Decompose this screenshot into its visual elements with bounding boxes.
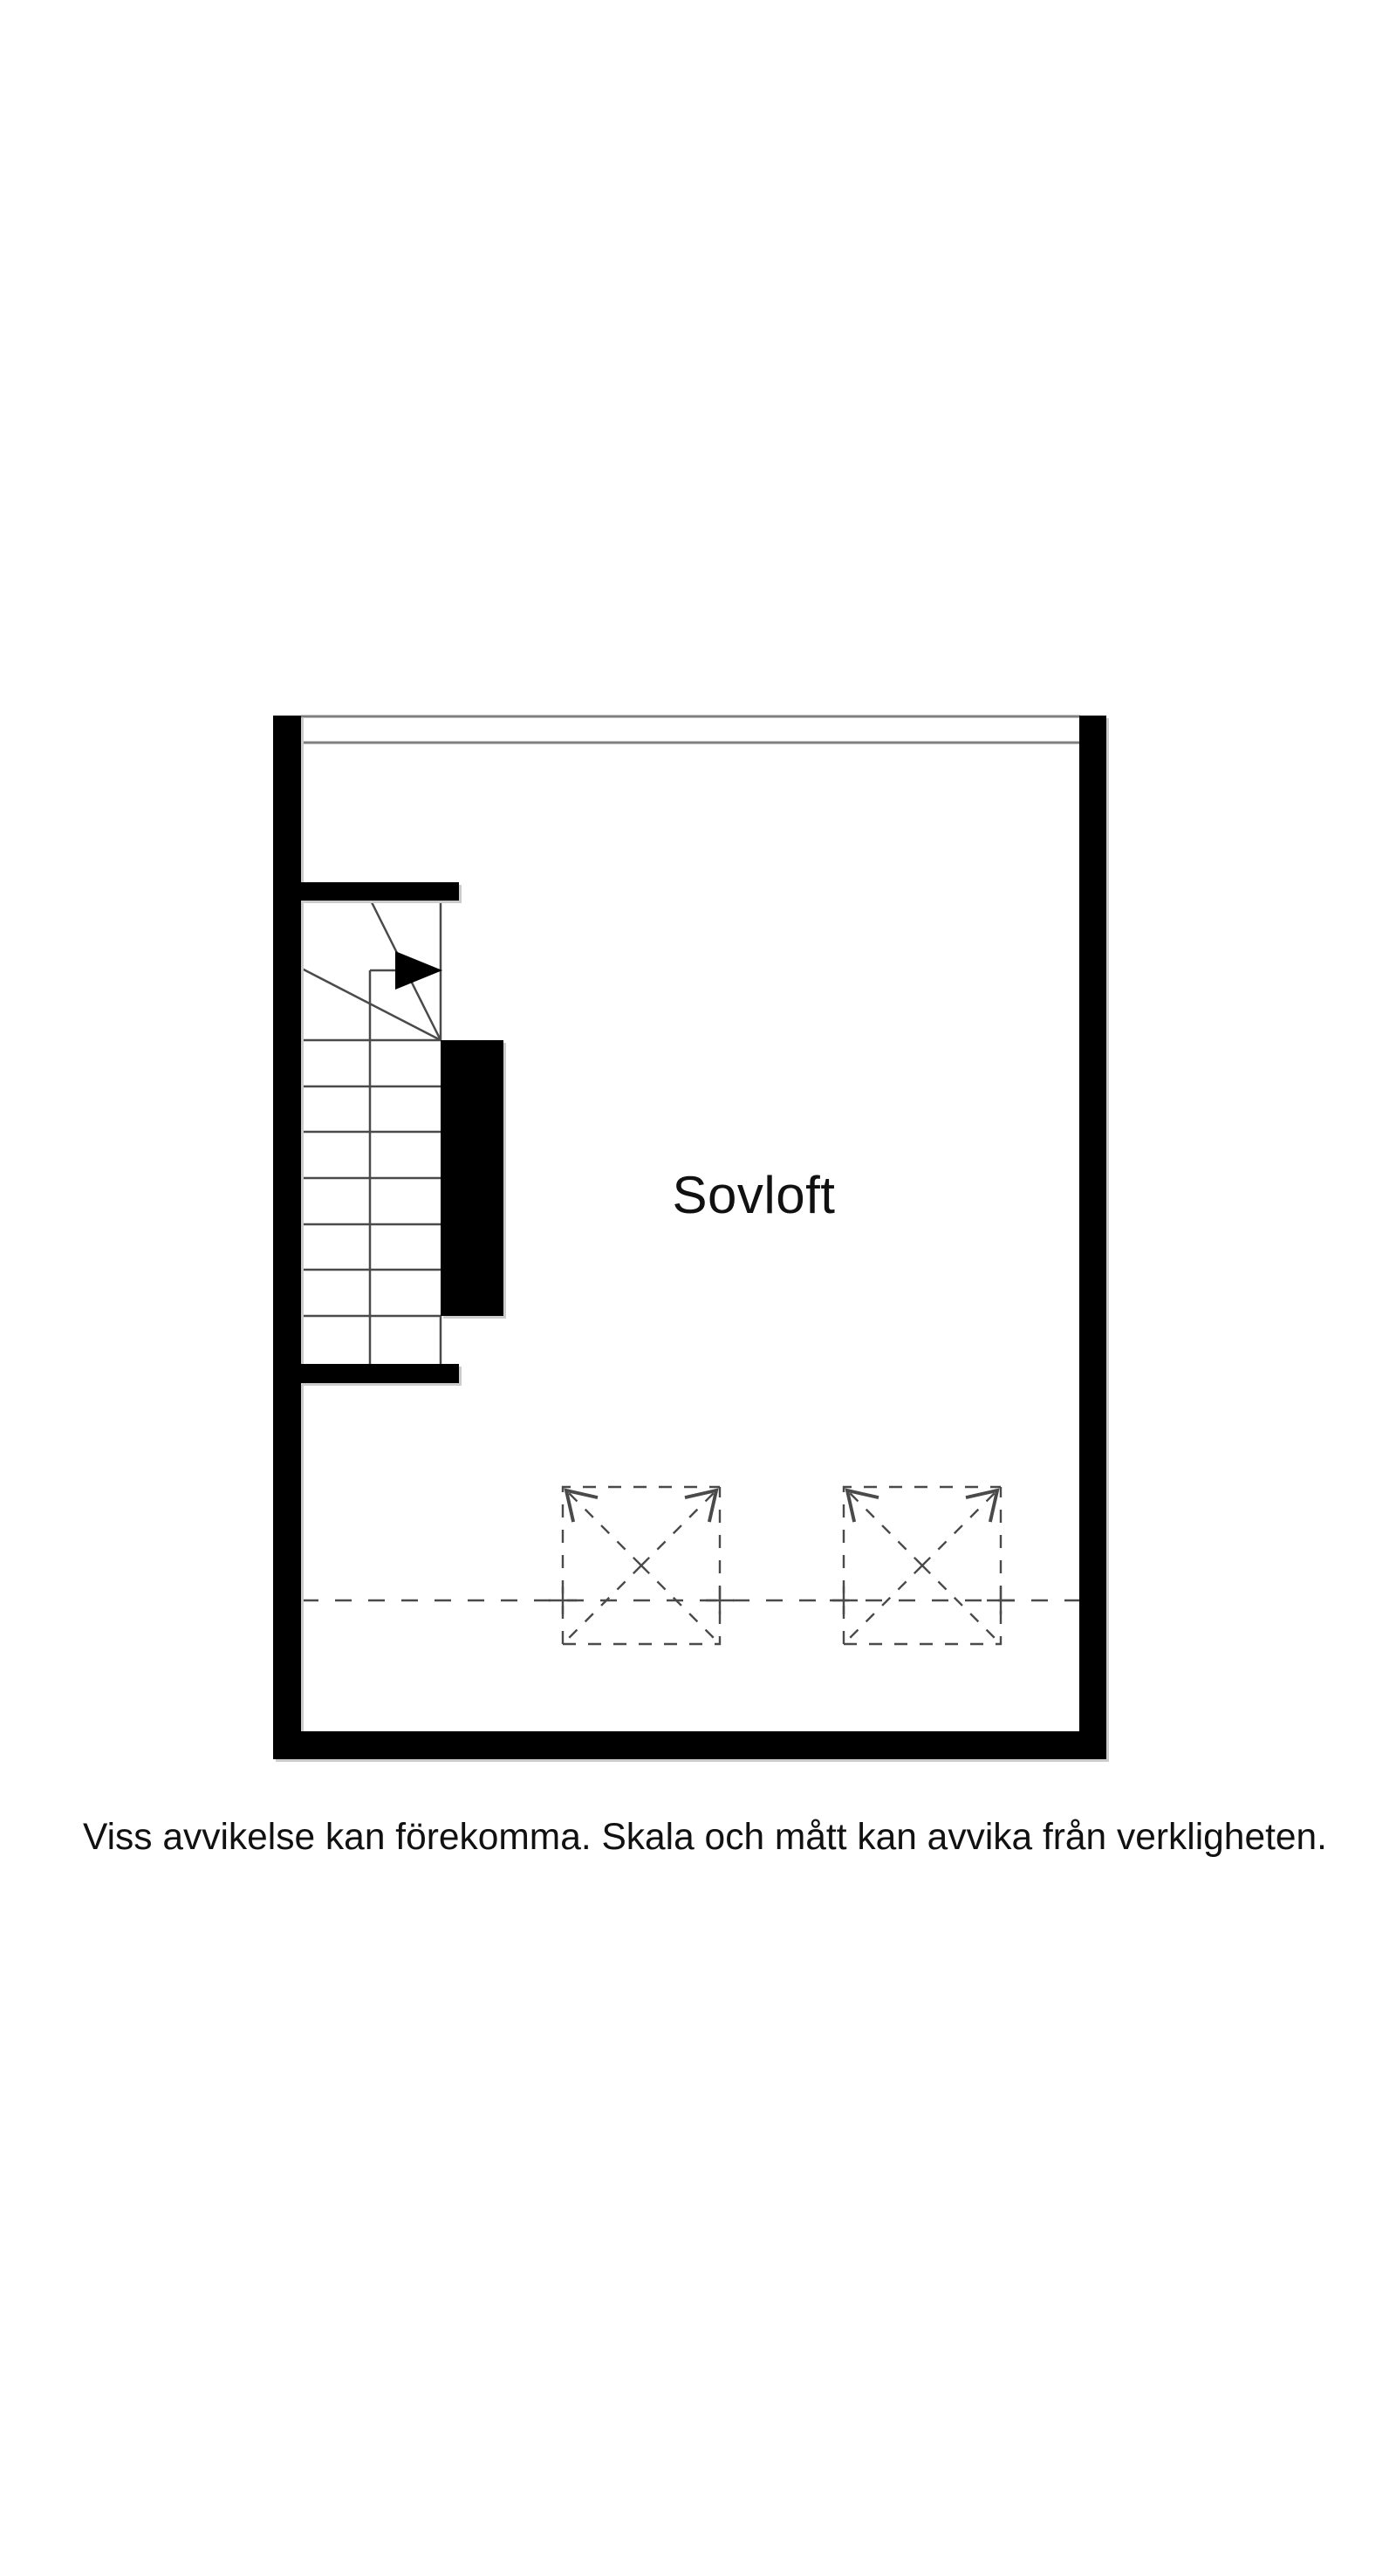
left-wall [273,716,301,1759]
room-label: Sovloft [673,1166,836,1224]
bottom-wall [273,1731,1106,1759]
floorplan-drawing: Sovloft Viss avvikelse kan förekomma. Sk… [0,0,1396,2576]
floorplan-page: Sovloft Viss avvikelse kan förekomma. Sk… [0,0,1396,2576]
page-background [0,0,1396,2576]
disclaimer-text: Viss avvikelse kan förekomma. Skala och … [83,1817,1327,1858]
stair-top-wall [273,882,459,901]
right-wall [1079,716,1106,1759]
stair-bottom-wall [273,1364,459,1383]
stair-newel-block [441,1040,503,1316]
